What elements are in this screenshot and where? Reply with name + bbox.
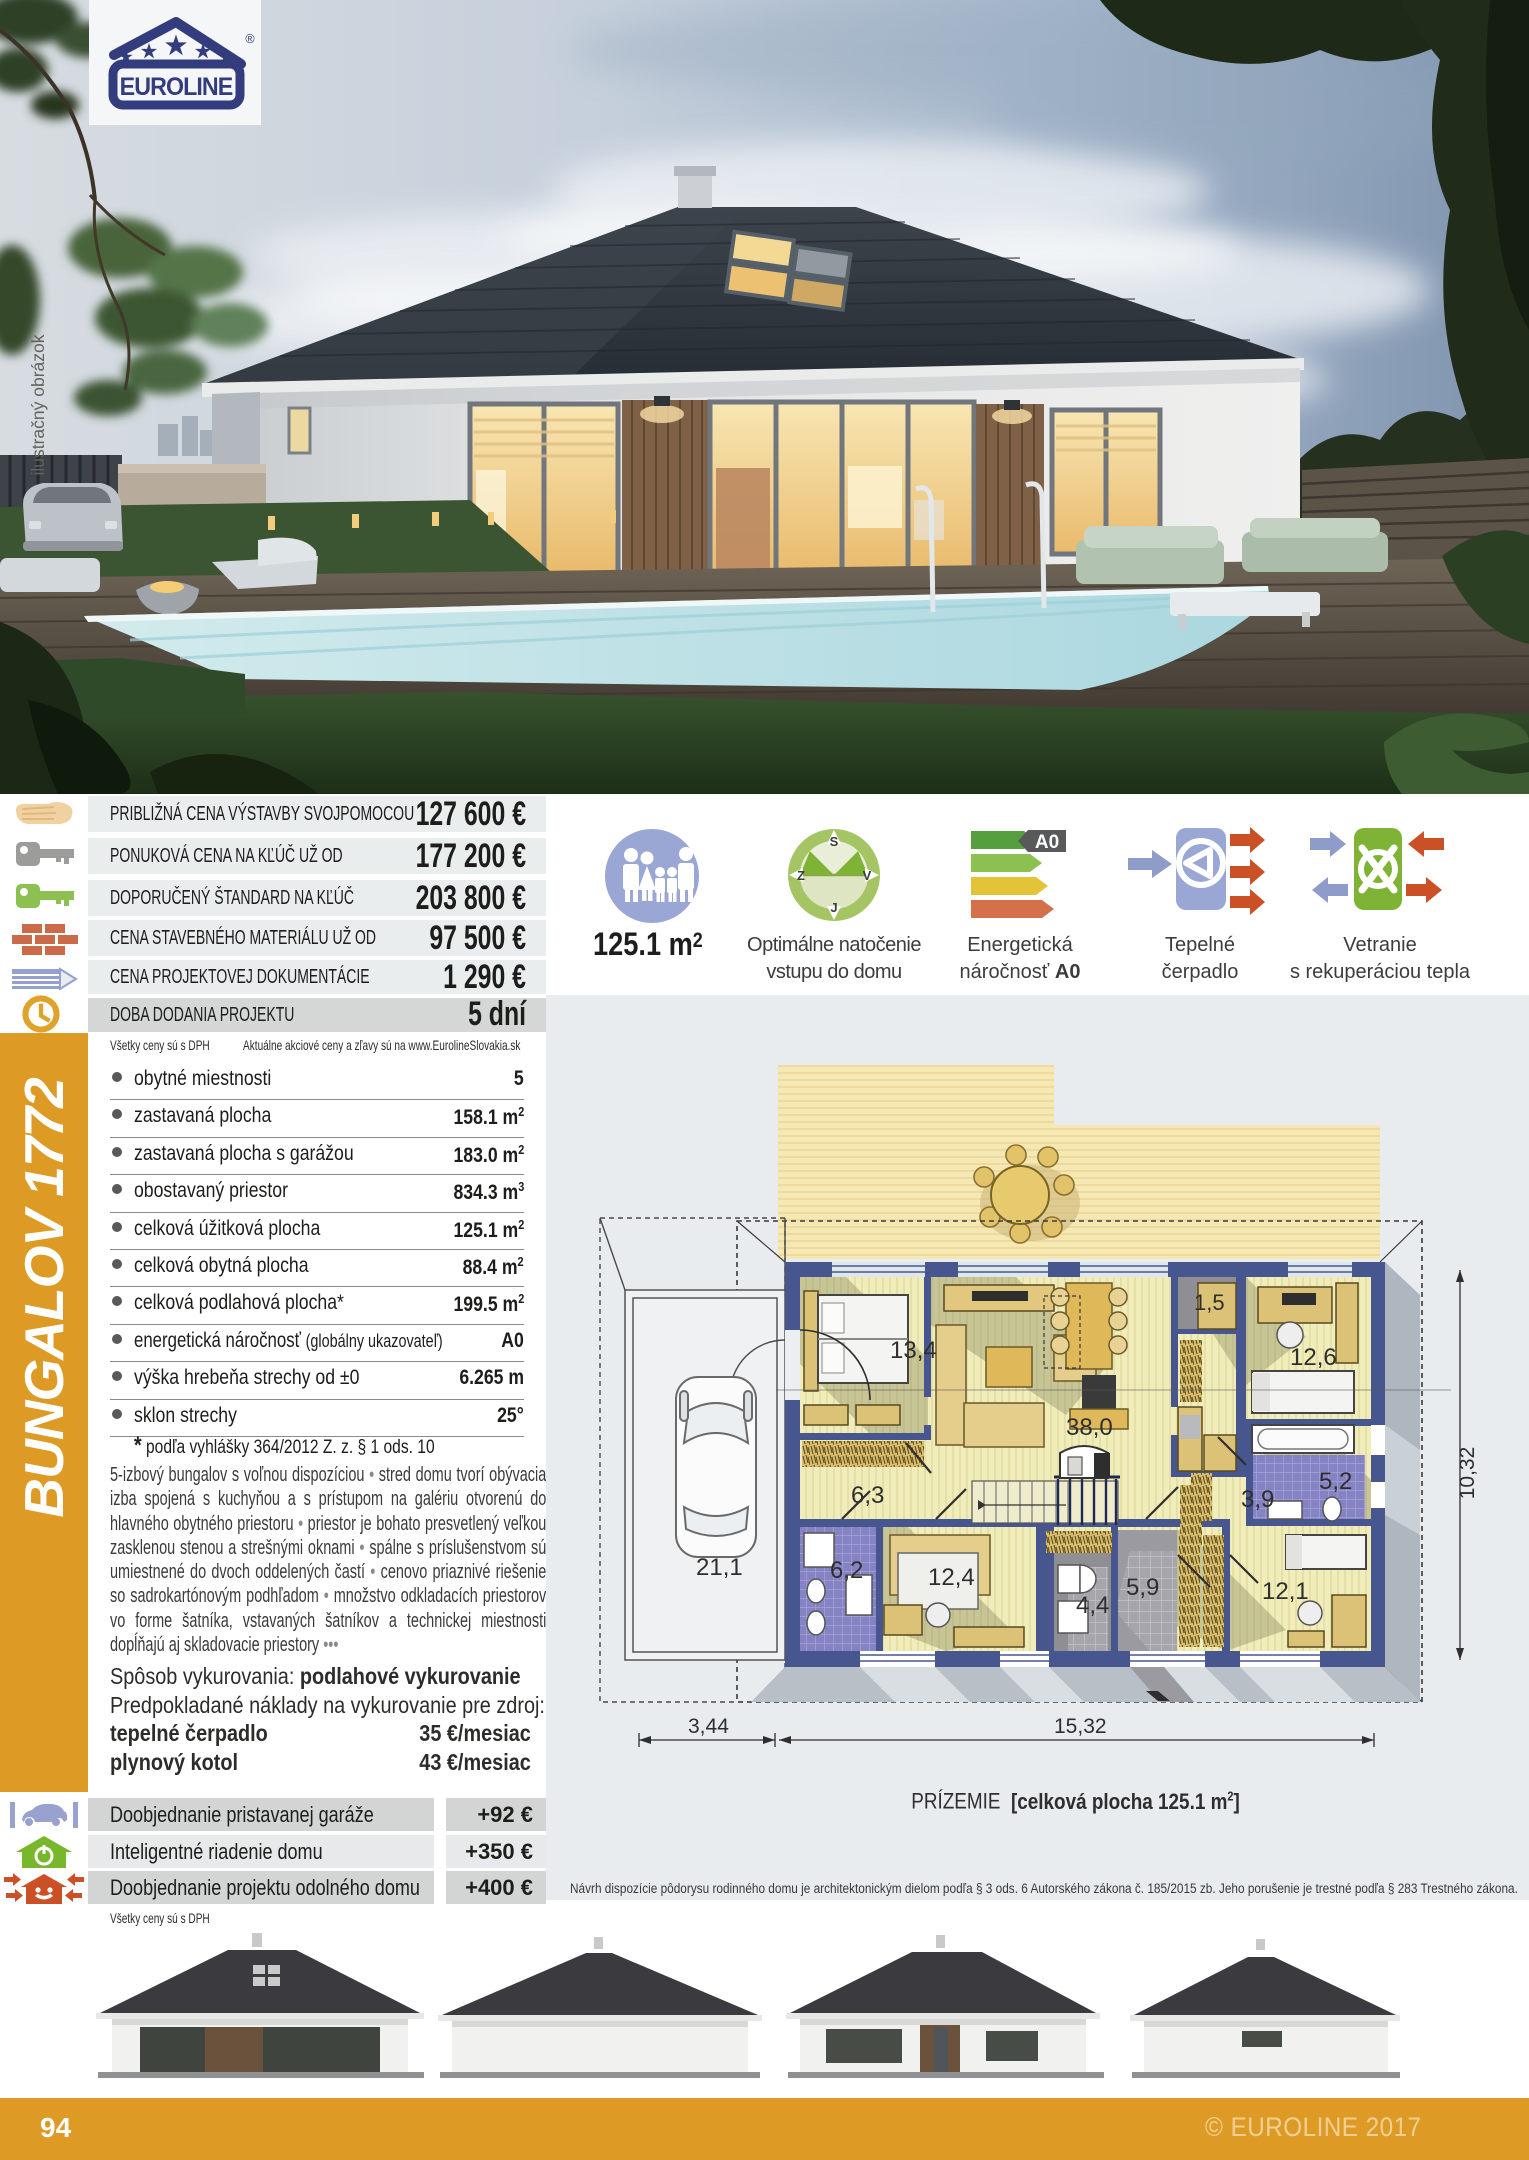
svg-text:5,9: 5,9: [1126, 1574, 1159, 1601]
svg-text:6,3: 6,3: [851, 1482, 884, 1509]
svg-text:V: V: [863, 868, 872, 883]
svg-text:3,44: 3,44: [688, 1715, 729, 1738]
svg-text:21,1: 21,1: [696, 1554, 743, 1581]
svg-text:12,6: 12,6: [1290, 1344, 1337, 1371]
svg-text:J: J: [830, 900, 837, 915]
svg-text:12,1: 12,1: [1262, 1578, 1309, 1605]
svg-text:3,9: 3,9: [1241, 1486, 1274, 1513]
svg-text:1,5: 1,5: [1194, 1290, 1225, 1315]
svg-text:Z: Z: [797, 868, 805, 883]
svg-text:13,4: 13,4: [890, 1337, 937, 1364]
svg-text:6,2: 6,2: [830, 1557, 863, 1584]
svg-text:S: S: [830, 834, 839, 849]
svg-text:4,4: 4,4: [1076, 1592, 1109, 1619]
svg-text:A0: A0: [1035, 832, 1059, 853]
svg-text:EUROLINE: EUROLINE: [120, 73, 233, 101]
svg-text:38,0: 38,0: [1066, 1414, 1113, 1441]
svg-text:®: ®: [245, 32, 255, 46]
svg-text:12,4: 12,4: [928, 1564, 975, 1591]
svg-text:5,2: 5,2: [1319, 1468, 1352, 1495]
svg-text:10,32: 10,32: [1456, 1447, 1479, 1500]
svg-text:15,32: 15,32: [1054, 1715, 1107, 1738]
